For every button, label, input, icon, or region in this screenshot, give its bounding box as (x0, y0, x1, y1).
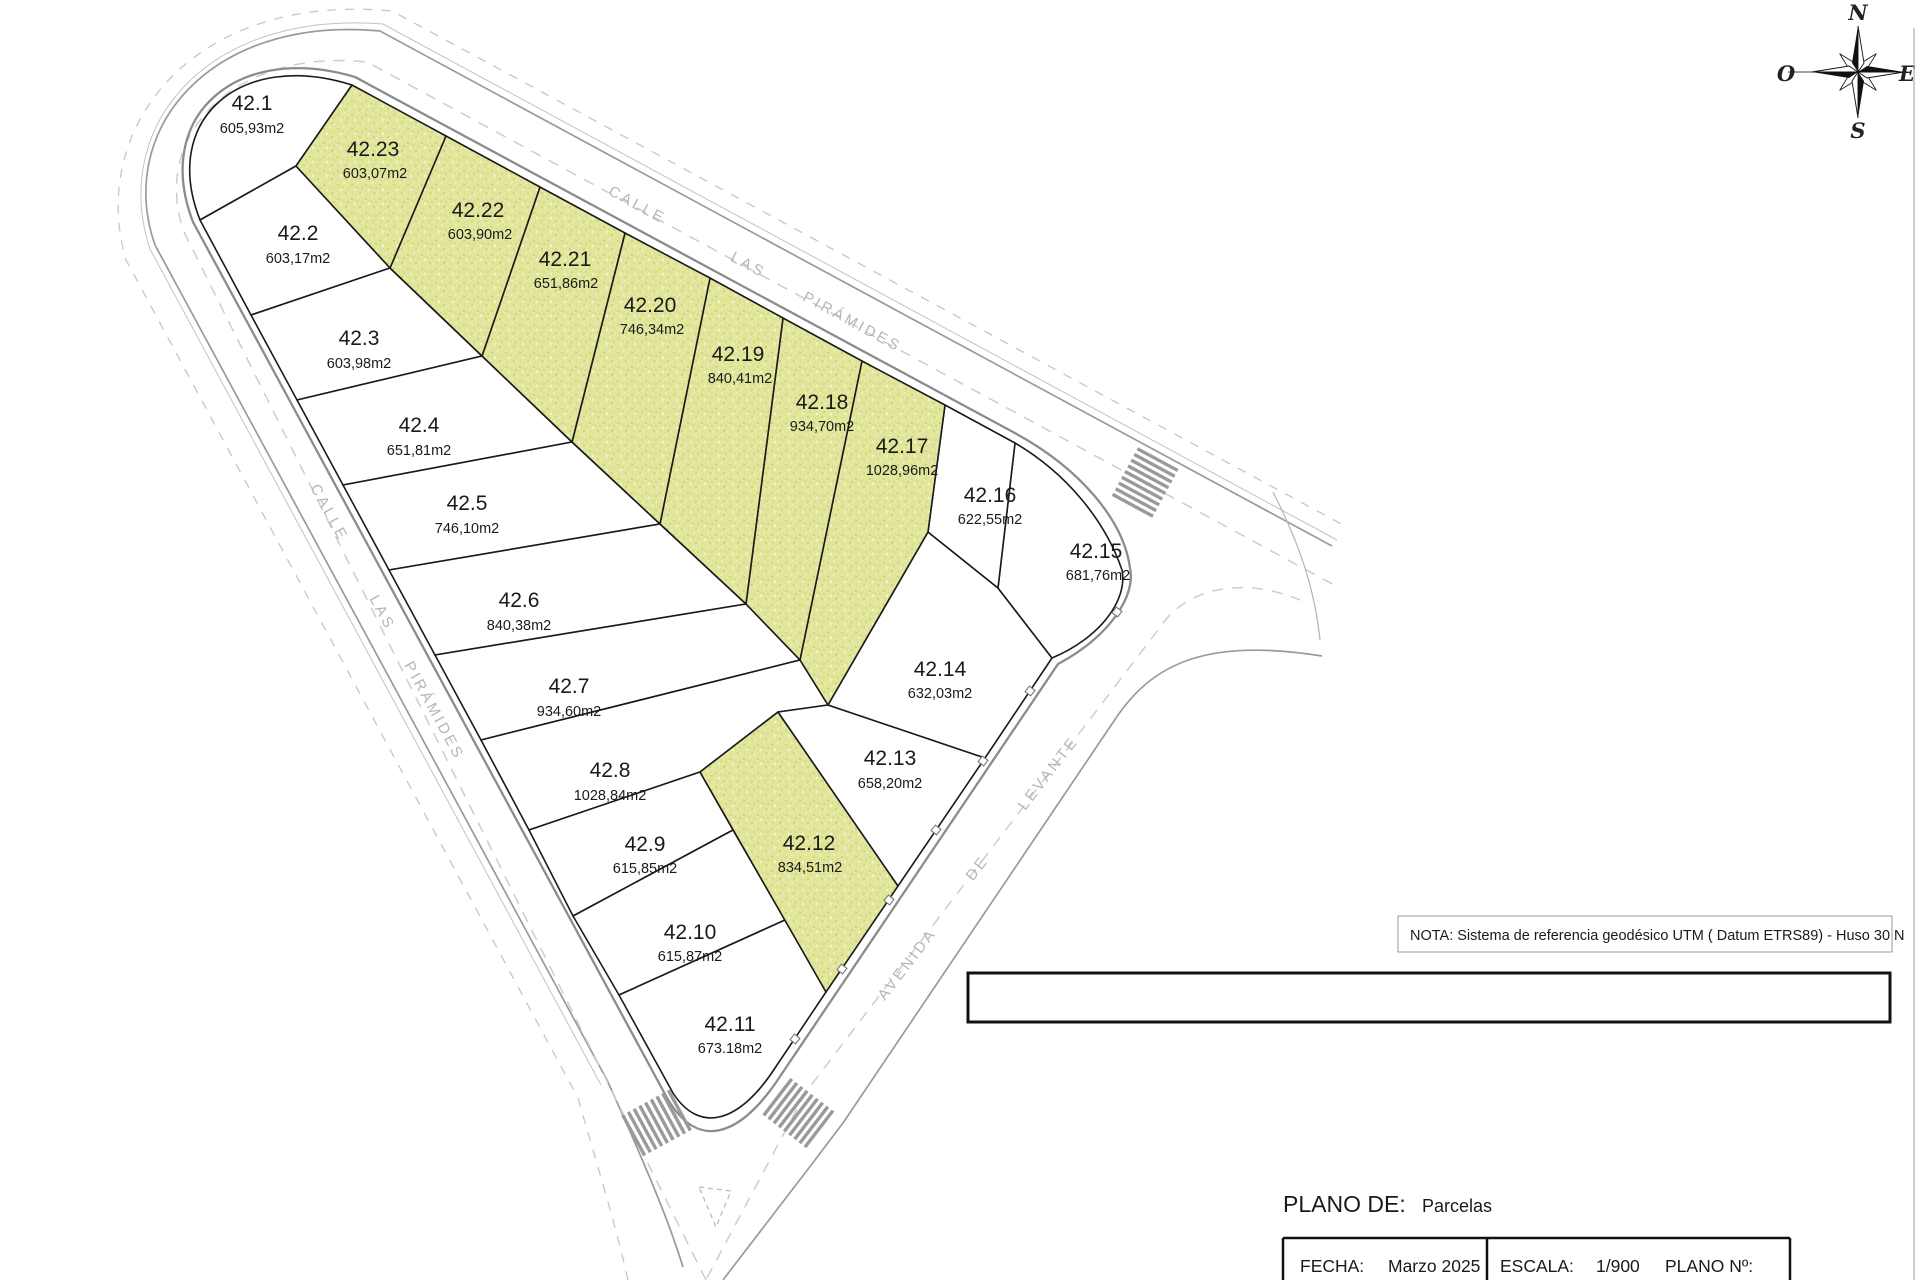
parcel-plan-sheet: 42.1 605,93m2 42.2 603,17m2 42.3 603,98m… (0, 0, 1920, 1280)
compass-east-label: E (1898, 61, 1916, 86)
crosswalk-bottom-right (762, 1078, 834, 1148)
parcel-area: 651,86m2 (534, 276, 599, 292)
title-block: PLANO DE: Parcelas FECHA: Marzo 2025 ESC… (1283, 1191, 1790, 1280)
parcel-id: 42.8 (590, 759, 631, 782)
parcel-id: 42.22 (452, 199, 505, 222)
parcel-area: 658,20m2 (858, 776, 923, 792)
parcel-area: 603,07m2 (343, 166, 408, 182)
plano-de-label: PLANO DE: (1283, 1191, 1406, 1217)
parcel-area: 746,10m2 (435, 521, 500, 537)
fecha-label: FECHA: (1300, 1256, 1364, 1276)
parcel-id: 42.6 (499, 589, 540, 612)
parcel-area: 632,03m2 (908, 686, 973, 702)
junction-stub-edge (1273, 492, 1320, 640)
compass-south-label: S (1850, 118, 1865, 143)
parcel-id: 42.1 (232, 92, 273, 115)
parcel-area: 934,60m2 (537, 704, 602, 720)
parcel-area: 615,87m2 (658, 949, 723, 965)
parcel-id: 42.14 (914, 658, 967, 681)
parcel-area: 605,93m2 (220, 121, 285, 137)
parcel-id: 42.15 (1070, 540, 1123, 563)
empty-title-strip (968, 973, 1890, 1022)
parcel-area: 615,85m2 (613, 861, 678, 877)
parcel-id: 42.13 (864, 747, 917, 770)
parcel-area: 840,41m2 (708, 371, 773, 387)
parcel-block (190, 76, 1123, 1118)
parcel-area: 651,81m2 (387, 443, 452, 459)
escala-value: 1/900 (1596, 1256, 1640, 1276)
parcel-id: 42.4 (399, 414, 440, 437)
compass-north-label: N (1847, 0, 1868, 25)
parcel-id: 42.5 (447, 492, 488, 515)
parcel-area: 622,55m2 (958, 512, 1023, 528)
plano-num-label: PLANO Nº: (1665, 1256, 1753, 1276)
parcel-id: 42.20 (624, 294, 677, 317)
parcel-area: 746,34m2 (620, 322, 685, 338)
parcel-id: 42.3 (339, 327, 380, 350)
parcel-id: 42.7 (549, 675, 590, 698)
street-label: DE (963, 852, 993, 884)
parcel-area: 603,90m2 (448, 227, 513, 243)
parcel-id: 42.2 (278, 222, 319, 245)
parcel-id: 42.9 (625, 833, 666, 856)
parcel-area: 1028,84m2 (574, 788, 647, 804)
note-text: NOTA: Sistema de referencia geodésico UT… (1410, 928, 1905, 944)
parcel-id: 42.16 (964, 484, 1017, 507)
yield-triangle (699, 1187, 731, 1227)
parcel-area: 934,70m2 (790, 419, 855, 435)
plano-de-value: Parcelas (1422, 1196, 1492, 1216)
parcel-id: 42.23 (347, 138, 400, 161)
escala-label: ESCALA: (1500, 1256, 1574, 1276)
parcel-area: 834,51m2 (778, 860, 843, 876)
compass-rose-icon: N E S O (1777, 0, 1916, 143)
parcel-area: 673.18m2 (698, 1041, 763, 1057)
plan-canvas: 42.1 605,93m2 42.2 603,17m2 42.3 603,98m… (0, 0, 1920, 1280)
parcel-id: 42.10 (664, 921, 717, 944)
parcel-area: 603,17m2 (266, 251, 331, 267)
street-label: LAS (728, 249, 769, 282)
parcel-id: 42.19 (712, 343, 765, 366)
parcel-area: 681,76m2 (1066, 568, 1131, 584)
parcel-id: 42.21 (539, 248, 592, 271)
parcel-id: 42.18 (796, 391, 849, 414)
parcel-id: 42.17 (876, 435, 929, 458)
compass-west-label: O (1777, 61, 1796, 86)
parcel-id: 42.11 (705, 1013, 756, 1036)
street-label: CALLE (606, 183, 669, 228)
note-box: NOTA: Sistema de referencia geodésico UT… (1398, 916, 1905, 952)
street-label: LEVANTE (1015, 733, 1082, 813)
parcel-id: 42.12 (783, 832, 836, 855)
street-label: LAS (366, 592, 399, 633)
street-label: AVENIDA (875, 925, 941, 1003)
parcel-area: 603,98m2 (327, 356, 392, 372)
parcel-area: 1028,96m2 (866, 463, 939, 479)
fecha-value: Marzo 2025 (1388, 1256, 1480, 1276)
street-label: CALLE (307, 481, 352, 544)
parcel-area: 840,38m2 (487, 618, 552, 634)
